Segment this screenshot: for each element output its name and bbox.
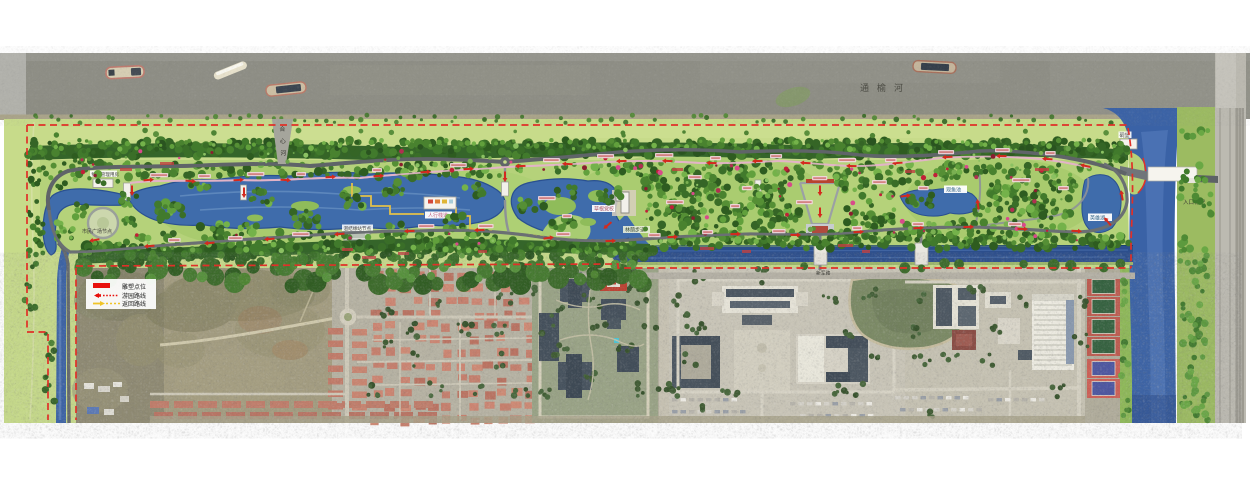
svg-text:草根党校: 草根党校: [594, 206, 614, 213]
svg-text:游园路线: 游园路线: [122, 292, 146, 300]
svg-text:雕塑点位: 雕塑点位: [122, 283, 146, 291]
svg-text:英雄湖: 英雄湖: [1090, 215, 1105, 222]
svg-text:心: 心: [280, 138, 286, 145]
svg-text:碉堡: 碉堡: [1120, 132, 1130, 139]
svg-text:林荫步道: 林荫步道: [625, 227, 645, 234]
svg-text:返回路线: 返回路线: [122, 300, 146, 308]
svg-text:市民广场节点: 市民广场节点: [82, 228, 112, 235]
svg-text:河: 河: [281, 149, 287, 157]
svg-text:合: 合: [280, 125, 286, 133]
svg-text:观鱼池: 观鱼池: [946, 187, 961, 194]
